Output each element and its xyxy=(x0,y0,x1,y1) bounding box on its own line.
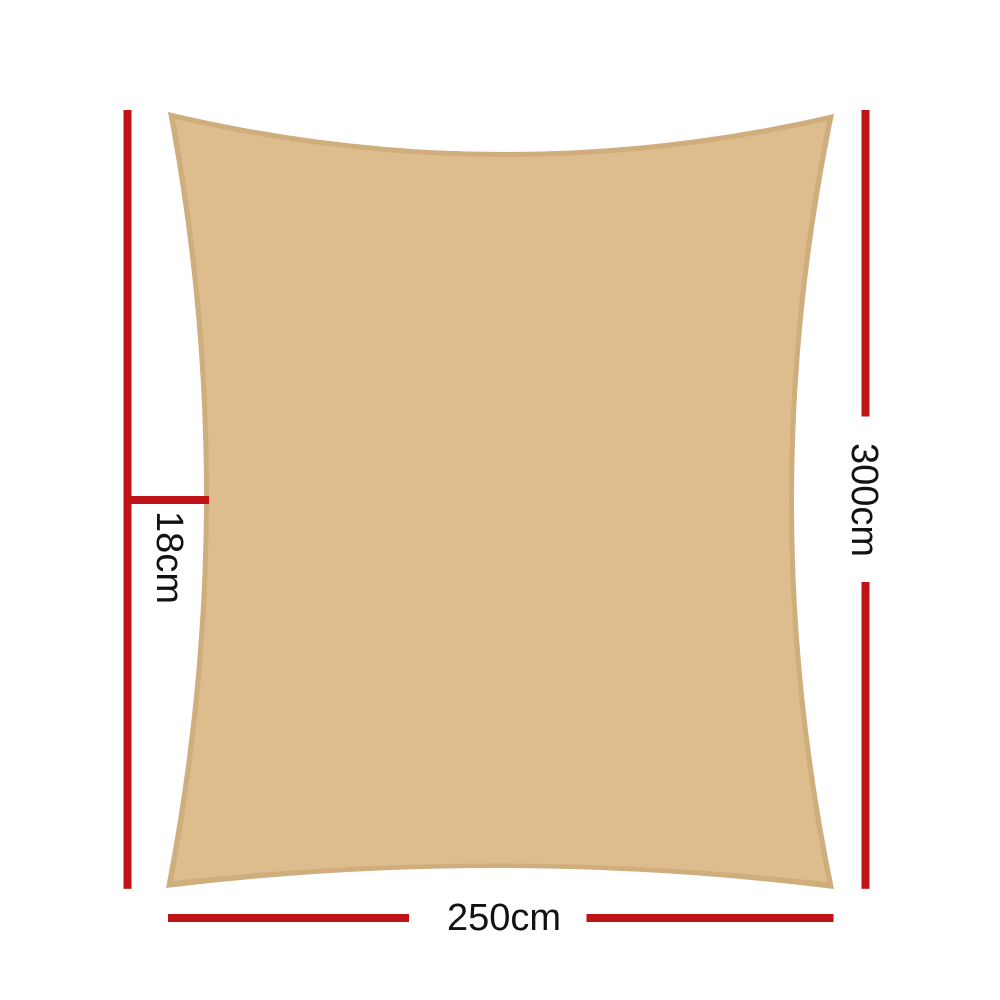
svg-text:250cm: 250cm xyxy=(447,897,561,939)
svg-text:18cm: 18cm xyxy=(148,511,190,604)
svg-text:300cm: 300cm xyxy=(843,443,885,557)
